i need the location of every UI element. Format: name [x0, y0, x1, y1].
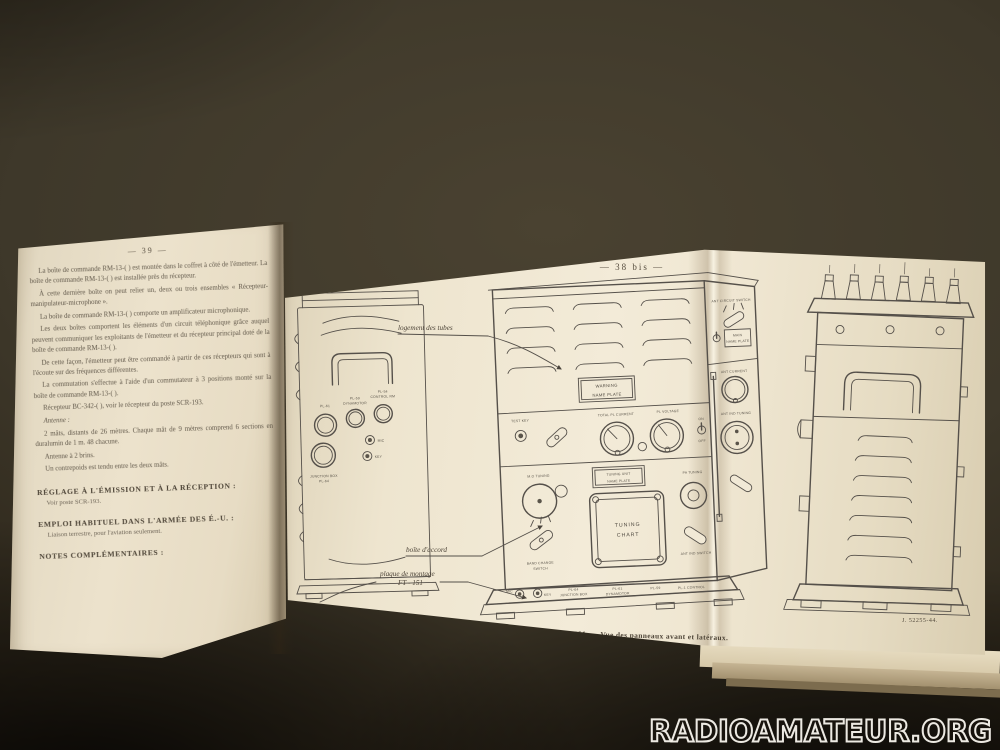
pl-voltage-label: PL VOLTAGE [656, 409, 679, 414]
plate-reference: J. 52255-44. [902, 618, 938, 624]
section-heading: NOTES COMPLÉMENTAIRES : [39, 544, 277, 561]
warning-name-plate: WARNING NAME PLATE [578, 376, 635, 402]
left-page-text-block: — 39 — La boîte de commande RM-13-( ) es… [29, 242, 278, 561]
band-change-switch: BAND CHANGE SWITCH [525, 516, 556, 572]
mo-tuning-dial [522, 483, 568, 519]
left-view-junction-label-1: JUNCTION BOX [310, 474, 338, 479]
left-view-key-label: KEY [375, 455, 383, 459]
ant-ind-tuning-label: ANT IND TUNING [721, 411, 751, 416]
callout-accord-text: boîte d'accord [406, 546, 447, 554]
total-pl-current-label: TOTAL PL CURRENT [598, 412, 634, 418]
pl-voltage-meter [650, 418, 684, 452]
left-view-junction-label-2: PL-64 [319, 479, 329, 483]
foldout-page-number: — 38 bis — [599, 262, 664, 272]
left-view-pl61-label: PL-61 [320, 404, 330, 408]
ant-current-meter [721, 376, 748, 403]
left-view-pl54-label: PL-54 [378, 390, 388, 394]
tuning-unit-name-plate: TUNING UNIT NAME PLATE [592, 466, 645, 488]
callout-boite-accord: boîte d'accord [406, 526, 542, 556]
main-name-plate: MAIN NAME PLATE [724, 329, 751, 347]
side-link-rod [713, 376, 719, 516]
figure-caption: Fig. 1. — Émetteur BC-191. — Vue des pan… [490, 626, 729, 642]
ant-circuit-switch-label: ANT CIRCUIT SWITCH [711, 298, 751, 304]
front-view-drawing: WARNING NAME PLATE TEST KEY TOTAL PL CUR… [466, 270, 772, 619]
callout-plaque-montage: plaque de montage FT - 151 [320, 570, 526, 602]
tuning-chart-line2: CHART [617, 532, 640, 539]
pl64-label: PL-64 [568, 588, 578, 592]
ant-ind-tuning-dial [720, 421, 753, 454]
callout-montage-line1: plaque de montage [379, 570, 436, 578]
left-page-number: — 39 — [29, 242, 267, 259]
pa-tuning-dial [680, 482, 707, 509]
left-page: — 39 — La boîte de commande RM-13-( ) es… [10, 220, 286, 658]
send-receive-lever [545, 426, 569, 449]
main-plate-line1: MAIN [733, 333, 743, 337]
total-pl-current-meter [600, 421, 634, 455]
band-change-label-2: SWITCH [533, 566, 548, 571]
foldout-page: — 38 bis — PL-61 PL-59 PL-54 DYNAMOTOR C… [280, 230, 990, 668]
left-view-handle [332, 352, 393, 385]
callout-montage-line2: FT - 151 [397, 579, 423, 587]
off-label: OFF [698, 439, 706, 443]
key-label: KEY [544, 593, 552, 597]
paragraph: Les deux boîtes comportent les éléments … [31, 317, 270, 356]
right-view-handle [844, 372, 922, 413]
test-key-label: TEST KEY [511, 418, 530, 423]
on-label: ON [698, 417, 704, 421]
tube-compartment-louvers [505, 298, 692, 373]
antenna-terminal-posts [829, 259, 954, 278]
figure-1-drawing: — 38 bis — PL-61 PL-59 PL-54 DYNAMOTOR C… [280, 230, 990, 668]
left-view-dynamotor-label: DYNAMOTOR [343, 401, 367, 406]
left-view-mic-label: MIC [378, 439, 385, 443]
mounting-plate: MIC KEY PL-64 JUNCTION BOX PL-61 DYNAMOT… [479, 575, 744, 619]
pl61-label: PL-61 [612, 587, 622, 591]
ant-ind-switch-label: ANT IND SWITCH [681, 551, 712, 556]
watermark-text: RADIOAMATEUR.ORG [649, 713, 992, 748]
section-reglage: RÉGLAGE À L'ÉMISSION ET À LA RÉCEPTION :… [37, 480, 276, 507]
tuning-chart: TUNING CHART [589, 491, 666, 568]
junction-box-label: JUNCTION BOX [560, 592, 588, 597]
ant-ind-switch-front: ANT IND SWITCH [679, 524, 711, 556]
ant-current-label: ANT CURRENT [721, 369, 748, 374]
callout-tubes-text: logement des tubes [398, 324, 453, 332]
pl59-label: PL-59 [650, 586, 660, 590]
tuning-chart-line1: TUNING [615, 522, 641, 529]
front-view-right-face [704, 279, 767, 581]
callout-logement-des-tubes: logement des tubes [398, 324, 561, 369]
section-emploi: EMPLOI HABITUEL DANS L'ARMÉE DES É.-U. :… [38, 512, 277, 539]
band-change-label-1: BAND CHANGE [527, 561, 555, 566]
section-notes: NOTES COMPLÉMENTAIRES : [39, 544, 277, 561]
right-side-view-drawing [784, 258, 985, 618]
mo-tuning-label: M.O TUNING [527, 474, 550, 479]
ant-ind-switch-side [729, 474, 754, 494]
power-toggle [697, 423, 705, 434]
terminal-post-shapes [821, 273, 961, 305]
pa-tuning-label: PA TUNING [683, 470, 703, 475]
left-view-pl59-label: PL-59 [350, 396, 360, 400]
warning-plate-line1: WARNING [595, 383, 617, 389]
pl1-control-label: PL-1 CONTROL [678, 585, 705, 590]
front-view-side-panel: ANT CIRCUIT SWITCH MAIN NAME PLATE ANT C… [705, 298, 765, 522]
left-view-control-label: CONTROL RM [370, 394, 395, 399]
pilot-lamp [638, 442, 647, 451]
right-view-louvers [846, 435, 917, 563]
